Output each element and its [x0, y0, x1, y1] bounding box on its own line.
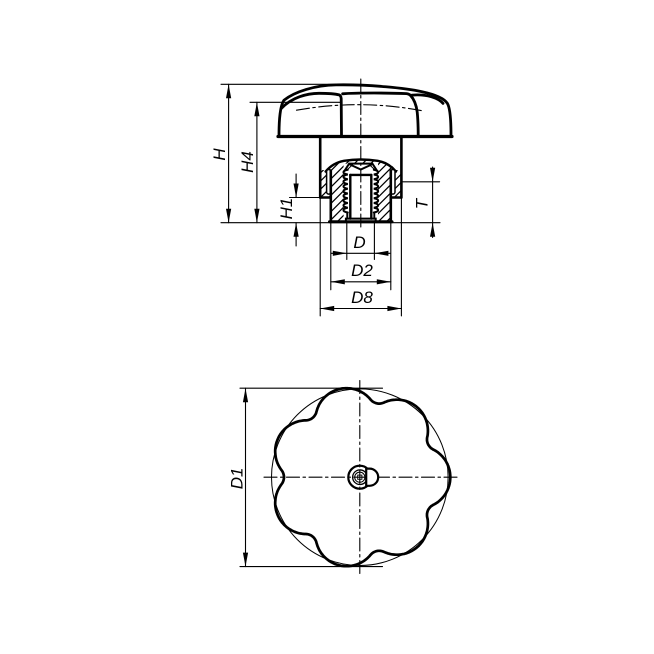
svg-text:H4: H4 — [238, 151, 257, 173]
svg-text:H1: H1 — [277, 198, 296, 220]
svg-text:D2: D2 — [351, 261, 373, 280]
svg-text:D: D — [353, 233, 365, 252]
svg-text:D1: D1 — [228, 468, 247, 490]
svg-text:H: H — [210, 148, 229, 161]
svg-text:T: T — [413, 197, 432, 209]
svg-text:D8: D8 — [351, 288, 373, 307]
